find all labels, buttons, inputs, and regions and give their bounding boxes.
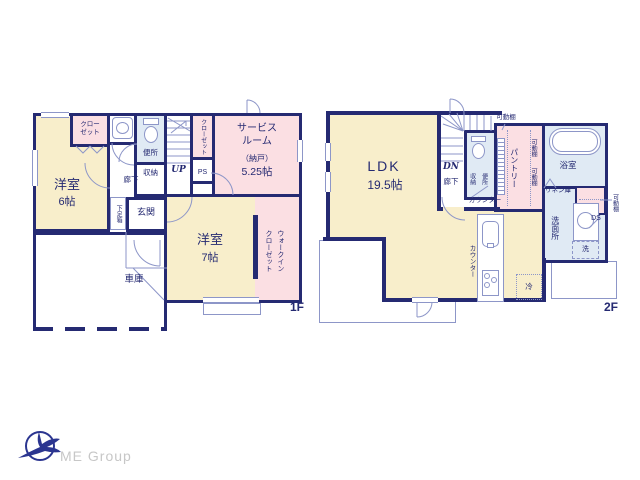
shelf-top-label: 可動棚 — [492, 114, 520, 123]
door-arc — [112, 143, 134, 165]
toilet-label-2f: 便所 — [478, 165, 489, 193]
service-room-note-label: （納戸） — [222, 153, 292, 165]
staircase-1f — [164, 113, 193, 197]
burner-icon — [484, 282, 490, 288]
wall-segment — [323, 237, 386, 241]
window — [412, 297, 438, 303]
logo-text: ME Group — [60, 448, 160, 466]
room6-size-label: 6帖 — [50, 195, 84, 209]
toilet-bowl-icon — [144, 126, 158, 143]
shelf-label: 可動棚 — [528, 163, 538, 191]
entrance-porch-step — [203, 303, 261, 315]
bathtub-inner-icon — [552, 131, 598, 152]
wall-segment — [326, 111, 502, 115]
garage-label: 車庫 — [114, 273, 154, 288]
linen-shelf-line — [579, 199, 603, 200]
room7-size-label: 7帖 — [190, 251, 230, 266]
faucet-icon — [487, 243, 494, 248]
window — [32, 150, 38, 186]
fridge-label: 冷 — [516, 274, 542, 300]
wall-counter-label: カウンター — [462, 196, 508, 206]
balcony-right — [551, 261, 617, 299]
stairs-up-label: UP — [164, 164, 193, 177]
closet-east-label: クローゼット — [196, 115, 209, 159]
window — [41, 112, 69, 118]
window — [297, 140, 303, 162]
corridor-label-2f: 廊下 — [436, 176, 466, 187]
duct-space-label: DS — [588, 214, 604, 224]
ldk-living-area — [328, 113, 440, 240]
wall-segment — [437, 207, 443, 211]
pantry-label: パントリー — [507, 133, 521, 203]
stairs-down-label: DN — [437, 161, 465, 174]
bathroom-label: 浴室 — [548, 159, 588, 172]
washer-label: 洗 — [572, 241, 599, 259]
floorplan-canvas: クロー ゼット 洋室 6帖 便所 収納 UP クローゼット PS サービス ルー… — [0, 0, 640, 480]
toilet-tank-icon — [143, 118, 159, 125]
window — [325, 143, 331, 161]
burner-icon — [484, 273, 490, 279]
toilet-tank-icon — [471, 136, 486, 142]
washroom-label: 洗面所 — [548, 206, 562, 250]
pipe-space-label: PS — [190, 167, 215, 178]
linen-label: リネン庫 — [541, 186, 575, 196]
floor1-tag: 1F — [276, 300, 304, 315]
walkin-closet-label: ウォークイン クローゼット — [259, 213, 289, 289]
window — [325, 172, 331, 192]
toilet-label-1f: 便所 — [136, 147, 165, 158]
service-room-name-label: サービス ルーム — [222, 120, 292, 150]
ldk-size-label: 19.5帖 — [350, 178, 420, 194]
entrance-label: 玄関 — [128, 206, 164, 220]
ldk-name-label: LDK — [352, 157, 416, 176]
toilet-bowl-icon — [472, 143, 485, 159]
wall-segment — [464, 207, 500, 211]
kitchen-counter-label: カウンター — [466, 238, 477, 284]
stair-fan-2f — [441, 113, 463, 131]
closet-nw-label: クロー ゼット — [72, 117, 108, 141]
shelf-right-label: 可動棚 — [610, 187, 619, 218]
room7-name-label: 洋室 — [186, 232, 234, 249]
corridor-label-1f: 廊下 — [116, 174, 146, 185]
shoe-box-label: 下足箱 — [111, 199, 125, 228]
floor2-tag: 2F — [590, 300, 618, 315]
garage-door-opening — [33, 327, 167, 331]
burner-icon — [491, 277, 497, 283]
washbasin-bowl-icon — [116, 122, 129, 134]
wall-segment — [382, 237, 386, 302]
shelf-label: 可動棚 — [528, 134, 538, 161]
door-arc — [247, 100, 260, 113]
wic-partition-wall — [253, 215, 258, 279]
wall-segment — [542, 258, 546, 302]
megroup-bird-logo-icon — [16, 424, 62, 470]
room6-name-label: 洋室 — [45, 177, 89, 194]
service-room-size-label: 5.25帖 — [222, 166, 292, 180]
storage-label-2f: 収納 — [466, 165, 477, 193]
wall-counter — [497, 138, 505, 195]
window — [203, 297, 259, 303]
